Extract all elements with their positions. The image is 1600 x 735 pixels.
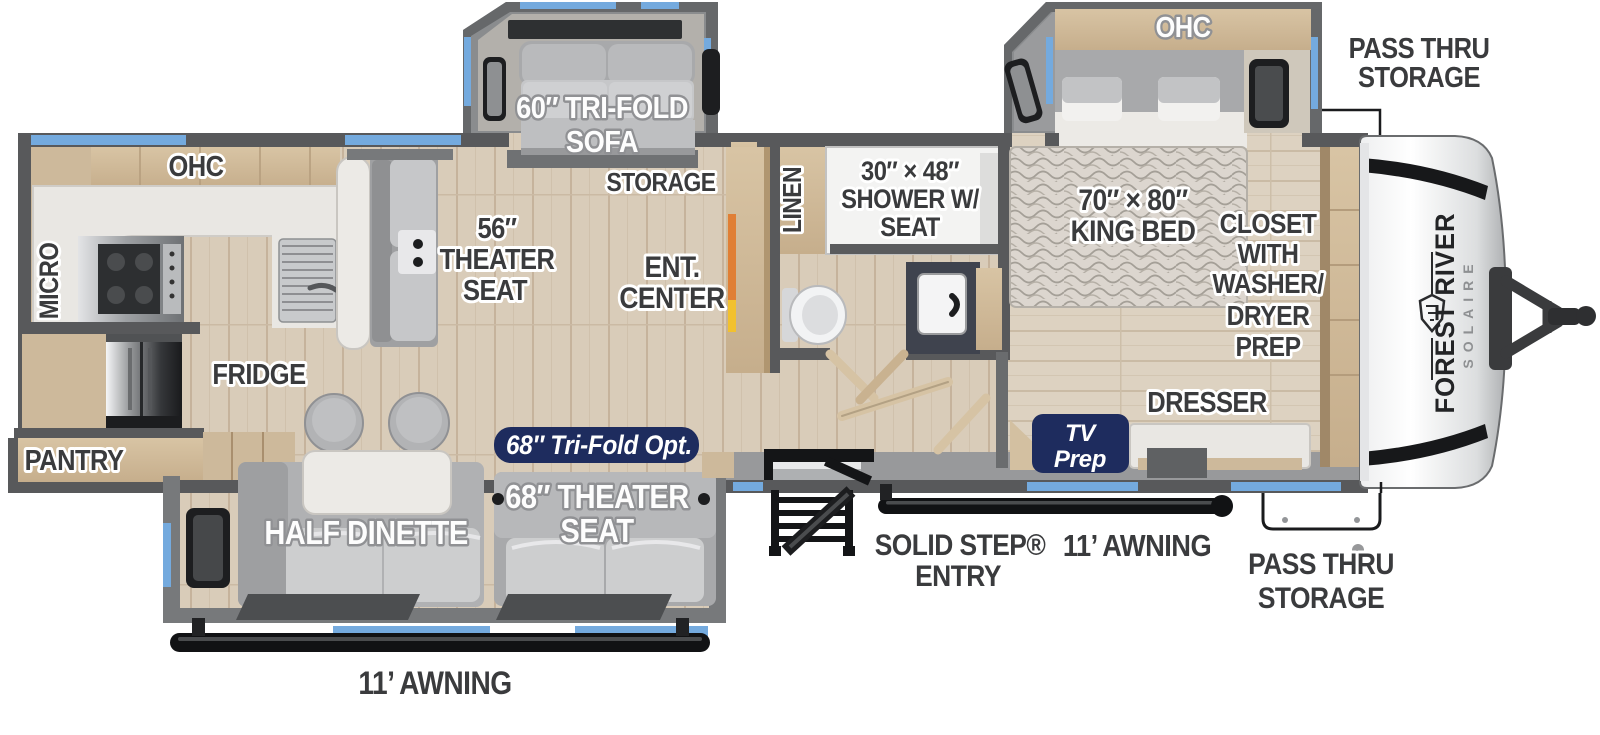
svg-text:PANTRY: PANTRY (25, 443, 124, 476)
svg-text:TV: TV (1065, 420, 1097, 447)
svg-text:MICRO: MICRO (35, 243, 65, 320)
svg-text:FRIDGE: FRIDGE (212, 357, 306, 390)
svg-text:DRESSER: DRESSER (1147, 385, 1267, 418)
svg-text:SOFA: SOFA (566, 125, 639, 159)
svg-text:PREP: PREP (1236, 331, 1301, 363)
svg-text:CENTER: CENTER (619, 280, 724, 314)
svg-text:ENT.: ENT. (644, 249, 699, 283)
svg-text:60″ TRI-FOLD: 60″ TRI-FOLD (516, 91, 688, 125)
svg-text:11’ AWNING: 11’ AWNING (1063, 529, 1211, 563)
svg-text:KING BED: KING BED (1071, 213, 1196, 247)
svg-text:Prep: Prep (1054, 446, 1106, 473)
svg-text:PASS THRU: PASS THRU (1349, 31, 1490, 64)
svg-text:SOLAIRE: SOLAIRE (1460, 257, 1476, 368)
svg-text:68″ THEATER: 68″ THEATER (505, 478, 689, 515)
svg-text:LINEN: LINEN (779, 167, 808, 233)
svg-text:WASHER/: WASHER/ (1212, 268, 1324, 300)
svg-text:STORAGE: STORAGE (1358, 60, 1480, 93)
svg-text:DRYER: DRYER (1227, 300, 1310, 332)
svg-text:STORAGE: STORAGE (1258, 580, 1384, 614)
svg-text:WITH: WITH (1238, 238, 1299, 270)
svg-text:SOLID STEP®: SOLID STEP® (875, 527, 1046, 561)
svg-text:SEAT: SEAT (560, 512, 634, 549)
svg-text:PASS THRU: PASS THRU (1248, 546, 1394, 580)
svg-text:CLOSET: CLOSET (1220, 208, 1317, 240)
svg-text:HALF DINETTE: HALF DINETTE (264, 514, 467, 551)
svg-text:STORAGE: STORAGE (607, 169, 716, 198)
svg-text:56″: 56″ (477, 211, 516, 244)
svg-text:68″ Tri-Fold Opt.: 68″ Tri-Fold Opt. (506, 431, 692, 460)
svg-text:OHC: OHC (168, 149, 223, 182)
svg-text:THEATER: THEATER (440, 242, 556, 275)
svg-text:OHC: OHC (1155, 10, 1210, 43)
svg-text:SHOWER W/: SHOWER W/ (841, 185, 979, 215)
svg-text:FOREST RIVER: FOREST RIVER (1429, 213, 1460, 414)
svg-text:11’ AWNING: 11’ AWNING (358, 666, 511, 701)
svg-text:SEAT: SEAT (463, 273, 528, 306)
svg-text:70″ × 80″: 70″ × 80″ (1078, 182, 1188, 216)
svg-text:SEAT: SEAT (880, 213, 940, 243)
svg-text:ENTRY: ENTRY (915, 558, 1002, 592)
svg-text:30″ × 48″: 30″ × 48″ (861, 157, 959, 187)
